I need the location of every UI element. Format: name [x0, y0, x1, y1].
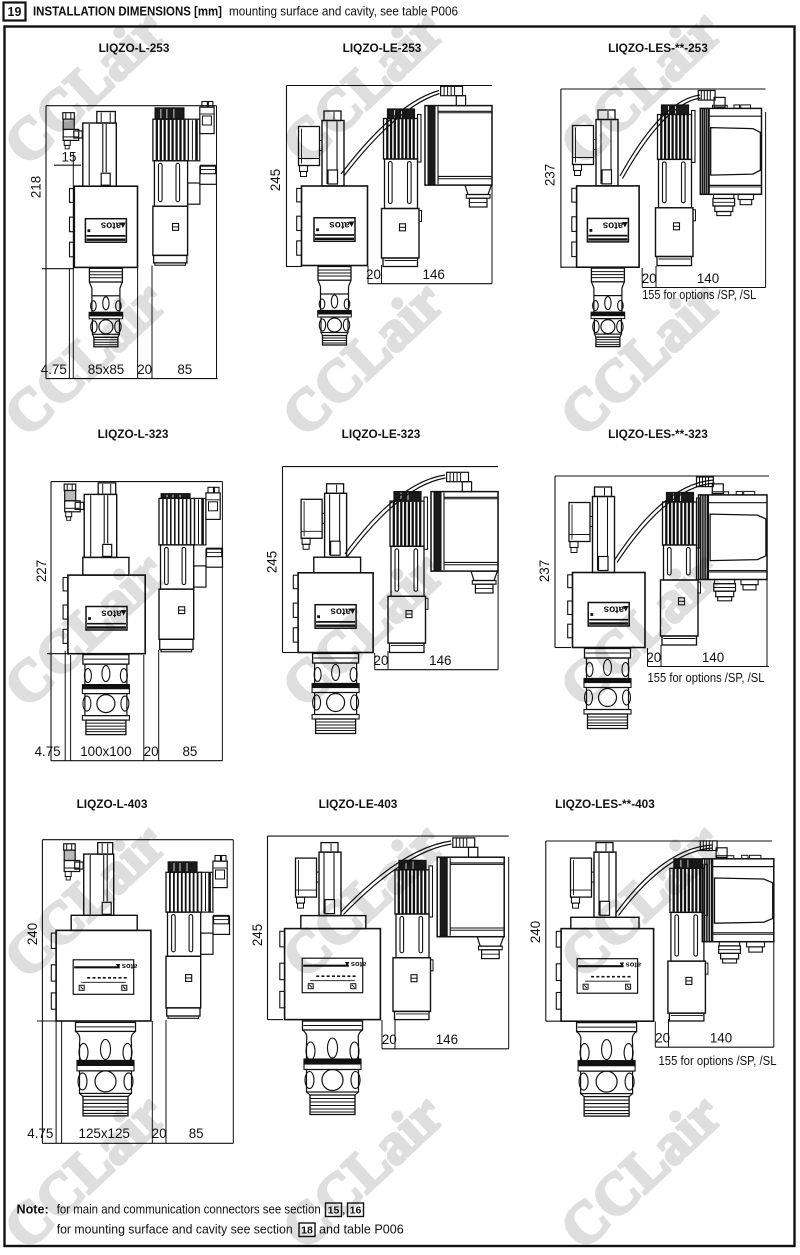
svg-text:LIQZO-LES-**-403: LIQZO-LES-**-403: [555, 797, 655, 811]
svg-text:85: 85: [189, 1126, 204, 1141]
svg-text:19: 19: [8, 5, 22, 19]
svg-text:155 for options /SP, /SL: 155 for options /SP, /SL: [659, 1053, 777, 1068]
svg-text:146: 146: [423, 267, 445, 282]
svg-text:155 for options /SP, /SL: 155 for options /SP, /SL: [648, 670, 765, 685]
svg-text:140: 140: [702, 650, 724, 665]
svg-text:▲: ▲: [620, 219, 629, 230]
svg-text:20: 20: [382, 1032, 397, 1047]
svg-text:140: 140: [710, 1031, 732, 1046]
svg-text:237: 237: [543, 164, 558, 186]
svg-text:▲: ▲: [347, 219, 356, 230]
svg-text:for mounting surface and cavit: for mounting surface and cavity see sect…: [57, 1223, 293, 1237]
svg-text:100x100: 100x100: [80, 744, 131, 759]
svg-text:15: 15: [62, 150, 77, 165]
svg-text:20: 20: [137, 362, 152, 377]
svg-text:LIQZO-L-323: LIQZO-L-323: [98, 427, 169, 441]
svg-text:LIQZO-LES-**-323: LIQZO-LES-**-323: [608, 427, 708, 441]
svg-text:LIQZO-LE-323: LIQZO-LE-323: [342, 427, 421, 441]
svg-text:237: 237: [537, 560, 552, 582]
svg-text:20: 20: [366, 267, 381, 282]
svg-text:227: 227: [34, 560, 49, 582]
svg-text:85: 85: [177, 362, 192, 377]
svg-text:atos: atos: [329, 219, 350, 230]
svg-text:4.75: 4.75: [35, 744, 61, 759]
svg-text:85: 85: [182, 744, 197, 759]
svg-text:20: 20: [144, 744, 159, 759]
svg-text:LIQZO-LE-403: LIQZO-LE-403: [319, 797, 398, 811]
svg-text:146: 146: [429, 653, 451, 668]
svg-text:atos▲: atos▲: [114, 962, 137, 971]
svg-text:LIQZO-L-403: LIQZO-L-403: [77, 797, 148, 811]
svg-text:20: 20: [642, 271, 657, 286]
svg-text:245: 245: [268, 169, 283, 191]
svg-text:atos: atos: [602, 219, 623, 230]
svg-text:atos▲: atos▲: [343, 960, 366, 969]
svg-text:245: 245: [265, 551, 280, 573]
svg-text:218: 218: [28, 176, 43, 198]
svg-text:4.75: 4.75: [27, 1126, 53, 1141]
svg-text:▲: ▲: [118, 219, 127, 230]
svg-text:20: 20: [655, 1031, 670, 1046]
svg-text:146: 146: [436, 1032, 458, 1047]
svg-text:atos: atos: [100, 220, 121, 231]
svg-text:245: 245: [250, 924, 265, 946]
svg-text:240: 240: [528, 921, 543, 943]
